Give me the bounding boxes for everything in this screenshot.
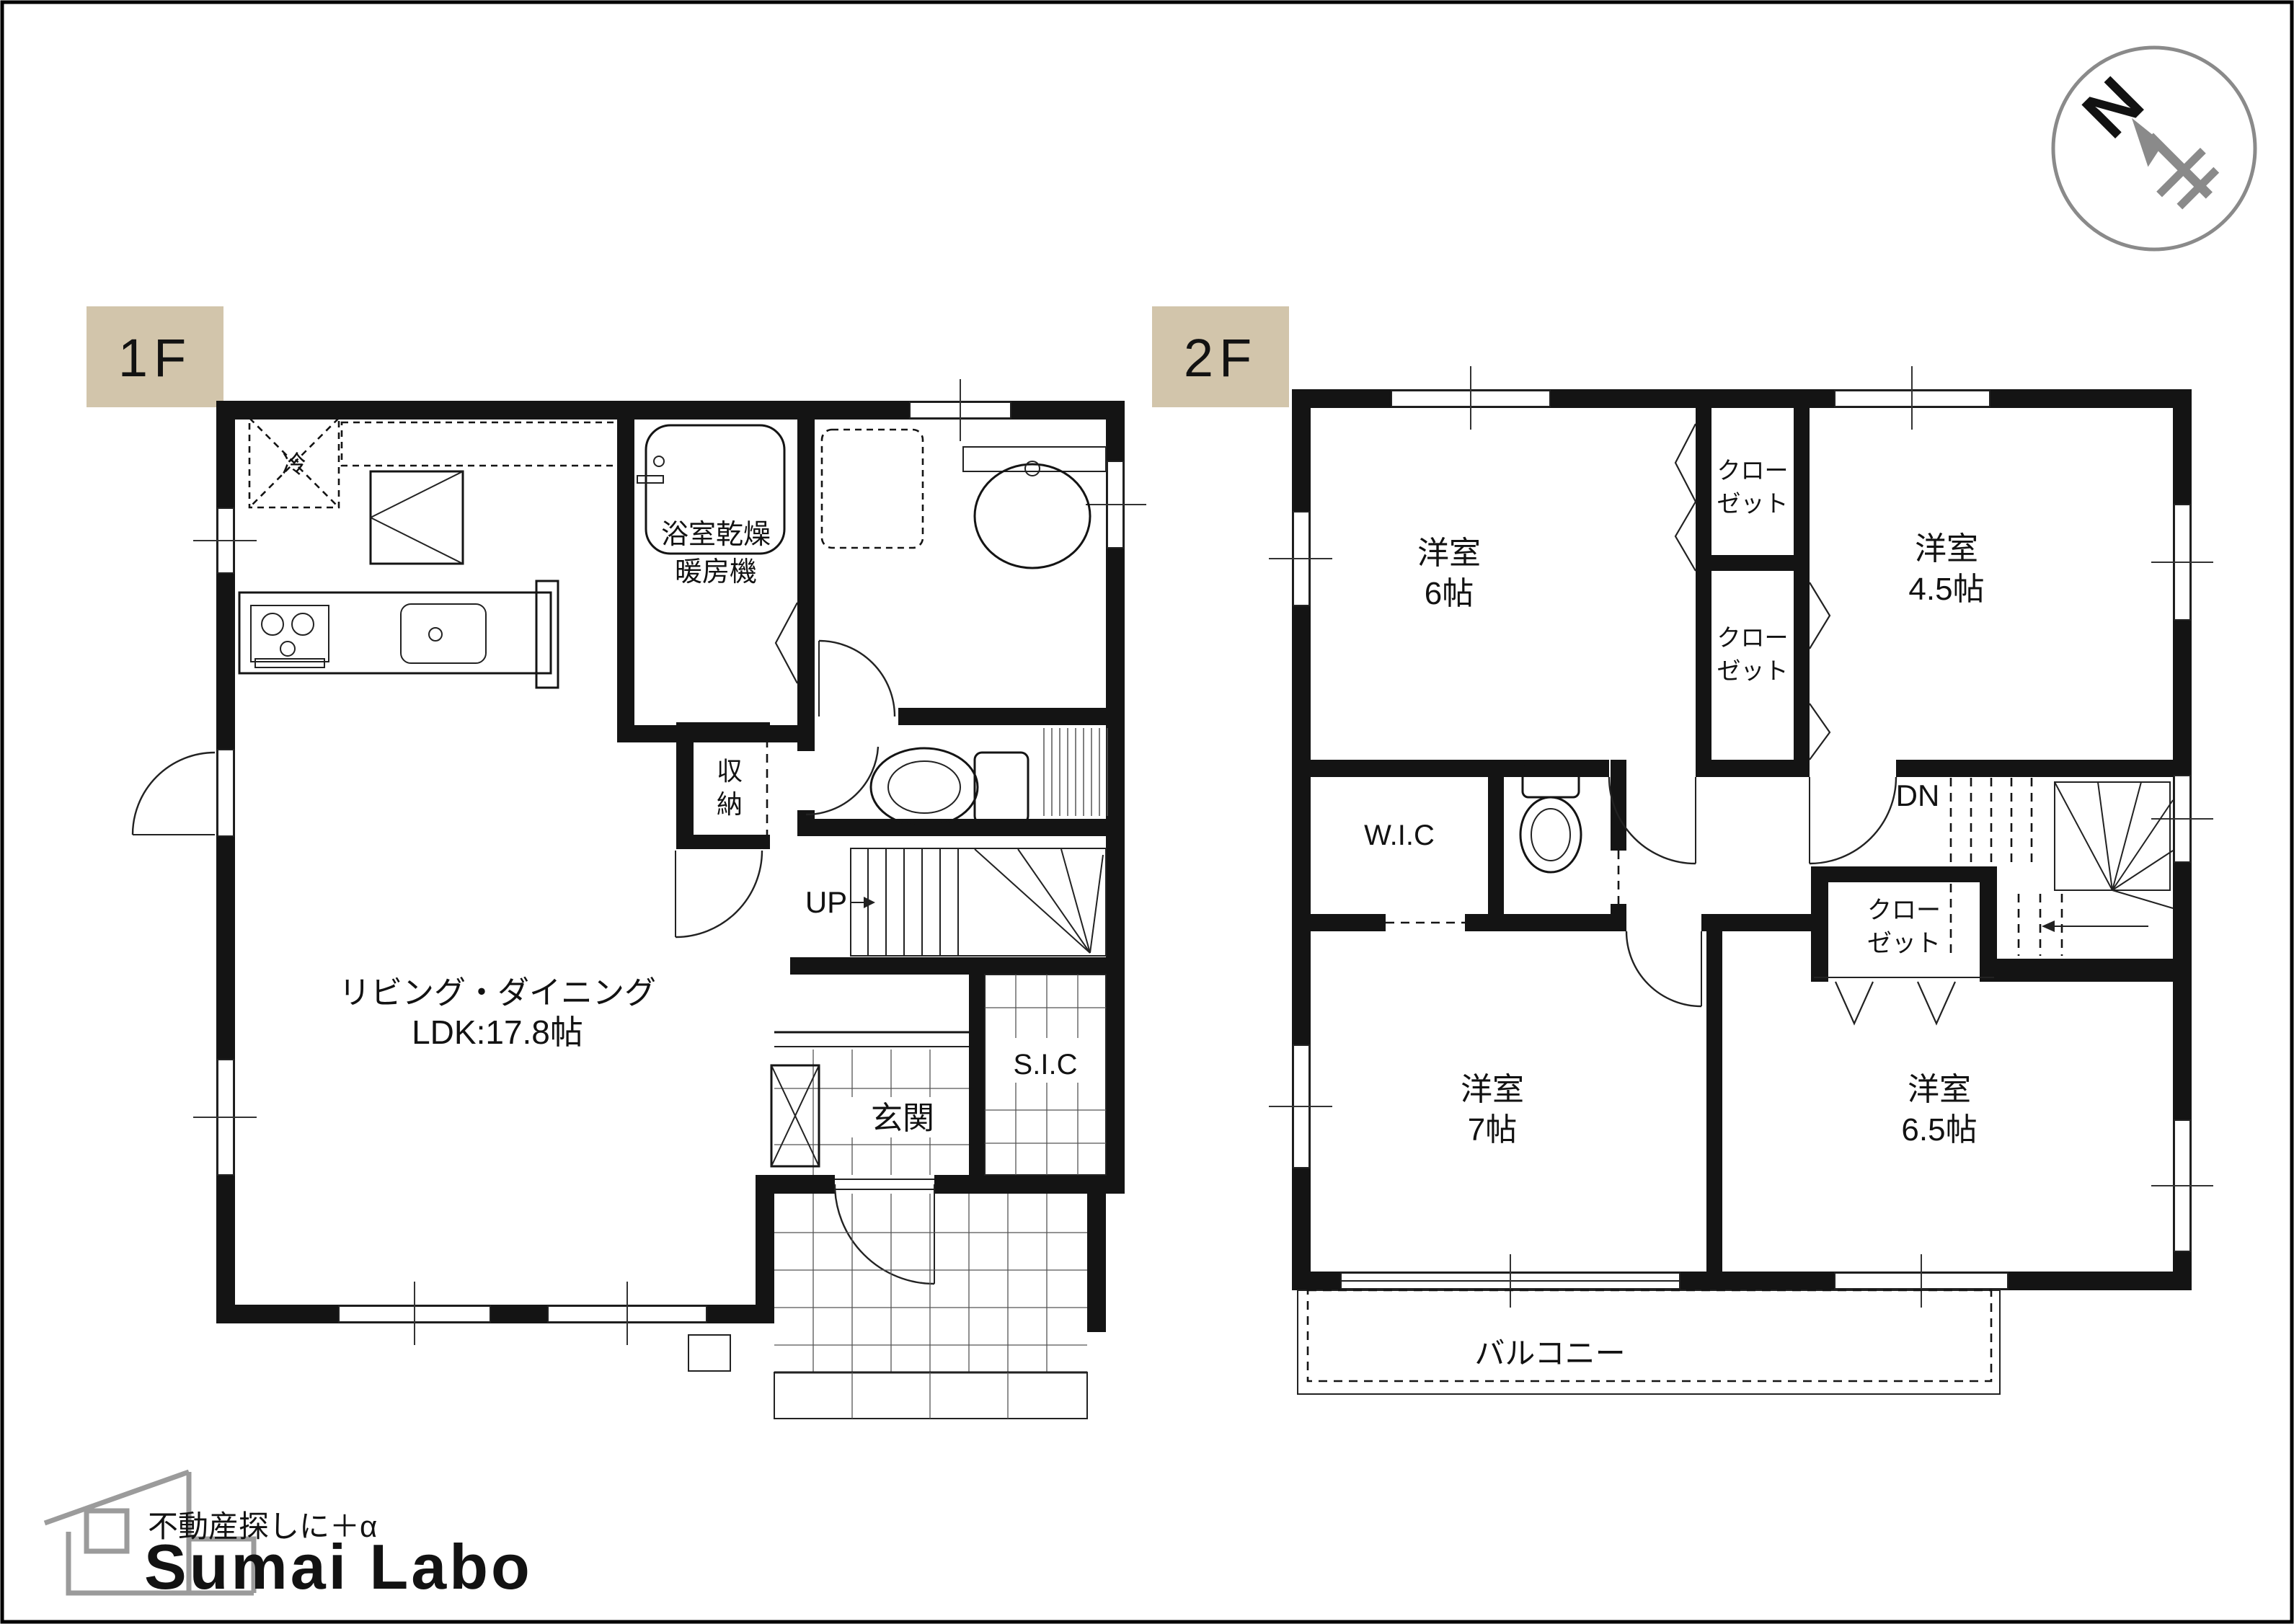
closet-mid-label-line2: ゼット <box>1717 657 1789 684</box>
page-border <box>2 2 2292 1622</box>
floor1-tag-label: 1F <box>118 328 192 388</box>
balcony-label: バルコニー <box>1474 1336 1625 1370</box>
bedroom6-label-line1: 洋室 <box>1417 536 1481 571</box>
floor1-tag: 1F <box>87 306 223 407</box>
storage-label-1: 収 <box>717 756 743 786</box>
closet-mid-label-line1: クロー <box>1717 624 1789 651</box>
bedroom65-label-line2: 6.5帖 <box>1901 1112 1977 1148</box>
bedroom7-label-line1: 洋室 <box>1461 1072 1524 1107</box>
closet-top-label-line2: ゼット <box>1717 490 1789 517</box>
floor2-tag-label: 2F <box>1184 328 1257 388</box>
closet-low-label-line2: ゼット <box>1867 930 1941 957</box>
bathroom-label-line2: 暖房機 <box>675 557 757 587</box>
floorplan-canvas: N 1F 2F <box>0 0 2294 1624</box>
fridge-label: 冷 <box>282 451 306 479</box>
entrance-label: 玄関 <box>871 1101 934 1136</box>
wic-label: W.I.C <box>1364 820 1435 851</box>
floorplan-page: N 1F 2F <box>0 0 2294 1624</box>
bedroom7-label-line2: 7帖 <box>1468 1112 1517 1148</box>
bedroom6-label-line2: 6帖 <box>1425 576 1474 611</box>
compass-north-icon: N <box>2053 48 2255 249</box>
logo-brand: Sumai Labo <box>144 1531 533 1602</box>
ldk-label-line2: LDK:17.8帖 <box>412 1013 583 1051</box>
sic-label: S.I.C <box>1014 1049 1078 1081</box>
bedroom45-label-line1: 洋室 <box>1915 531 1978 567</box>
floor2-tag: 2F <box>1152 306 1289 407</box>
storage-label-2: 納 <box>717 789 743 819</box>
closet-low-label-line1: クロー <box>1867 897 1941 924</box>
ldk-label-line1: リビング・ダイニング <box>339 975 656 1011</box>
bathroom-label-line1: 浴室乾燥 <box>661 520 771 550</box>
stairs-dn-label: DN <box>1896 778 1940 812</box>
bedroom65-label-line1: 洋室 <box>1908 1072 1971 1107</box>
stairs-up-label: UP <box>805 885 847 919</box>
closet-top-label-line1: クロー <box>1717 457 1789 484</box>
bedroom45-label-line2: 4.5帖 <box>1908 572 1984 607</box>
